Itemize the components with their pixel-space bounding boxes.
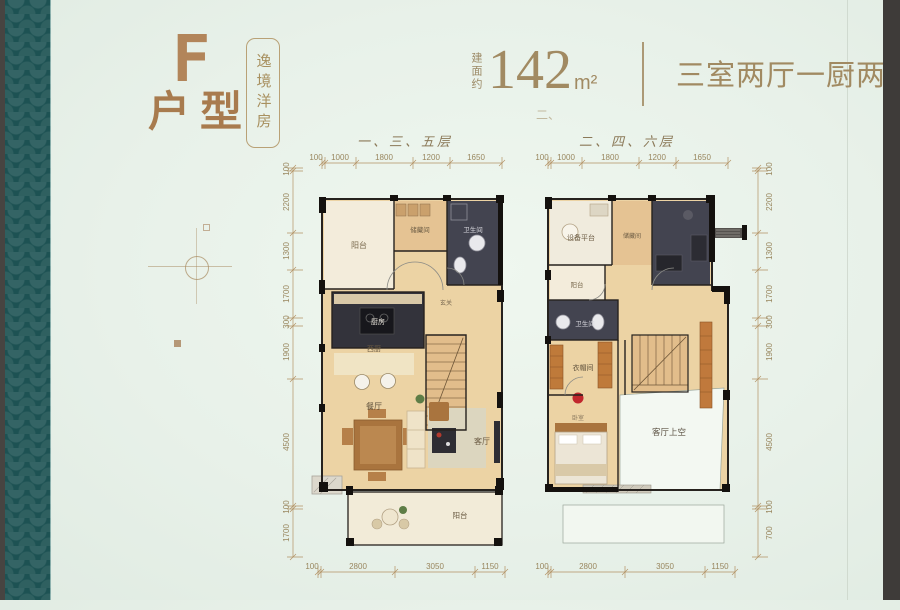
dim-label: 1700 — [765, 285, 774, 303]
room-label-west-kitchen: 西厨 — [367, 345, 381, 353]
dim-label: 1200 — [648, 153, 666, 162]
room-label-bedroom: 卧室 — [572, 414, 584, 422]
balcony-void-area — [563, 505, 724, 543]
room-label-balcony-bottom: 阳台 — [453, 510, 468, 520]
dim-label: 1000 — [331, 153, 349, 162]
room-label-cloak: 衣帽间 — [573, 363, 594, 372]
dim-label: 700 — [765, 526, 774, 540]
dim-label: 100 — [535, 562, 549, 571]
deco-square-filled — [174, 340, 181, 347]
unit-logo-letter: F — [172, 28, 211, 92]
tagline-text: 逸境洋房 — [253, 53, 274, 133]
header-divider — [642, 42, 644, 106]
room-label-kitchen: 厨房 — [371, 317, 385, 326]
rooms-summary: 三室两厅一厨两卫 — [676, 52, 883, 94]
dim-label: 4500 — [282, 433, 291, 451]
stray-mark: 二、 — [536, 106, 560, 123]
dim-label: 1300 — [765, 242, 774, 260]
area-value: 142 — [488, 44, 572, 97]
dim-label: 1800 — [375, 153, 393, 162]
dim-label: 1300 — [282, 242, 291, 260]
floorplan-brochure: { "page": { "bg": "#e9f2ea", "accent": "… — [0, 0, 900, 600]
room-label-foyer: 玄关 — [440, 299, 452, 307]
dim-label: 1650 — [467, 153, 485, 162]
dim-label: 300 — [282, 315, 291, 329]
dim-label: 1700 — [282, 524, 291, 542]
teal-pattern-band — [5, 0, 51, 600]
dim-label: 100 — [282, 162, 291, 176]
room-label-living: 客厅 — [474, 436, 490, 446]
room-label-storage: 储藏间 — [410, 225, 430, 234]
room-label-dining: 餐厅 — [366, 402, 382, 411]
room-label-bath: 卫生间 — [575, 319, 595, 328]
plan-left-drawing: 阳台 储藏间 卫生间 厨房 西厨 玄关 餐厅 客厅 阳台 100 1000 18… — [270, 140, 520, 610]
deco-crosshair-circle — [185, 256, 209, 280]
area-group: 建面约 142 m² — [468, 44, 629, 97]
plan-right-drawing: 设备平台 储藏间 阳台 卫生间 衣帽间 卧室 客厅上空 100 1000 180… — [528, 140, 778, 610]
dim-label: 300 — [765, 315, 774, 329]
room-balcony-bottom-area — [348, 492, 502, 545]
dim-label: 1150 — [711, 562, 729, 571]
dim-label: 1650 — [693, 153, 711, 162]
room-label-storage: 储藏间 — [623, 232, 641, 240]
dim-label: 100 — [282, 500, 291, 514]
tagline-box: 逸境洋房 — [246, 38, 280, 148]
dim-label: 100 — [535, 153, 549, 162]
room-label-equipment: 设备平台 — [567, 233, 595, 242]
dim-label: 1900 — [765, 343, 774, 361]
dim-label: 3050 — [426, 562, 444, 571]
unit-type-label: 户型 — [148, 92, 252, 134]
dim-label: 4500 — [765, 433, 774, 451]
dim-label: 100 — [309, 153, 323, 162]
dim-label: 1700 — [282, 285, 291, 303]
dim-label: 1800 — [601, 153, 619, 162]
room-label-balcony-top: 阳台 — [351, 240, 367, 250]
dim-label: 1150 — [481, 562, 499, 571]
dim-label: 2800 — [579, 562, 597, 571]
dim-label: 2800 — [349, 562, 367, 571]
right-dark-bar — [883, 0, 900, 600]
area-prefix: 建面约 — [468, 52, 484, 91]
deco-square-outline — [203, 224, 210, 231]
dim-label: 100 — [765, 162, 774, 176]
dim-label: 100 — [305, 562, 319, 571]
room-label-living-void: 客厅上空 — [652, 427, 686, 437]
dim-label: 1000 — [557, 153, 575, 162]
area-unit: m² — [574, 72, 597, 95]
deco-crosshair-hline — [148, 266, 232, 267]
west-kitchen-counter — [334, 353, 414, 375]
dim-label: 1200 — [422, 153, 440, 162]
deco-crosshair-vline — [196, 228, 197, 304]
dim-label: 2200 — [282, 193, 291, 211]
room-label-balcony: 阳台 — [571, 280, 584, 289]
dim-label: 1900 — [282, 343, 291, 361]
room-storage-area — [612, 201, 652, 265]
dim-label: 3050 — [656, 562, 674, 571]
dim-label: 2200 — [765, 193, 774, 211]
dim-label: 100 — [765, 500, 774, 514]
room-label-bath: 卫生间 — [463, 225, 483, 234]
